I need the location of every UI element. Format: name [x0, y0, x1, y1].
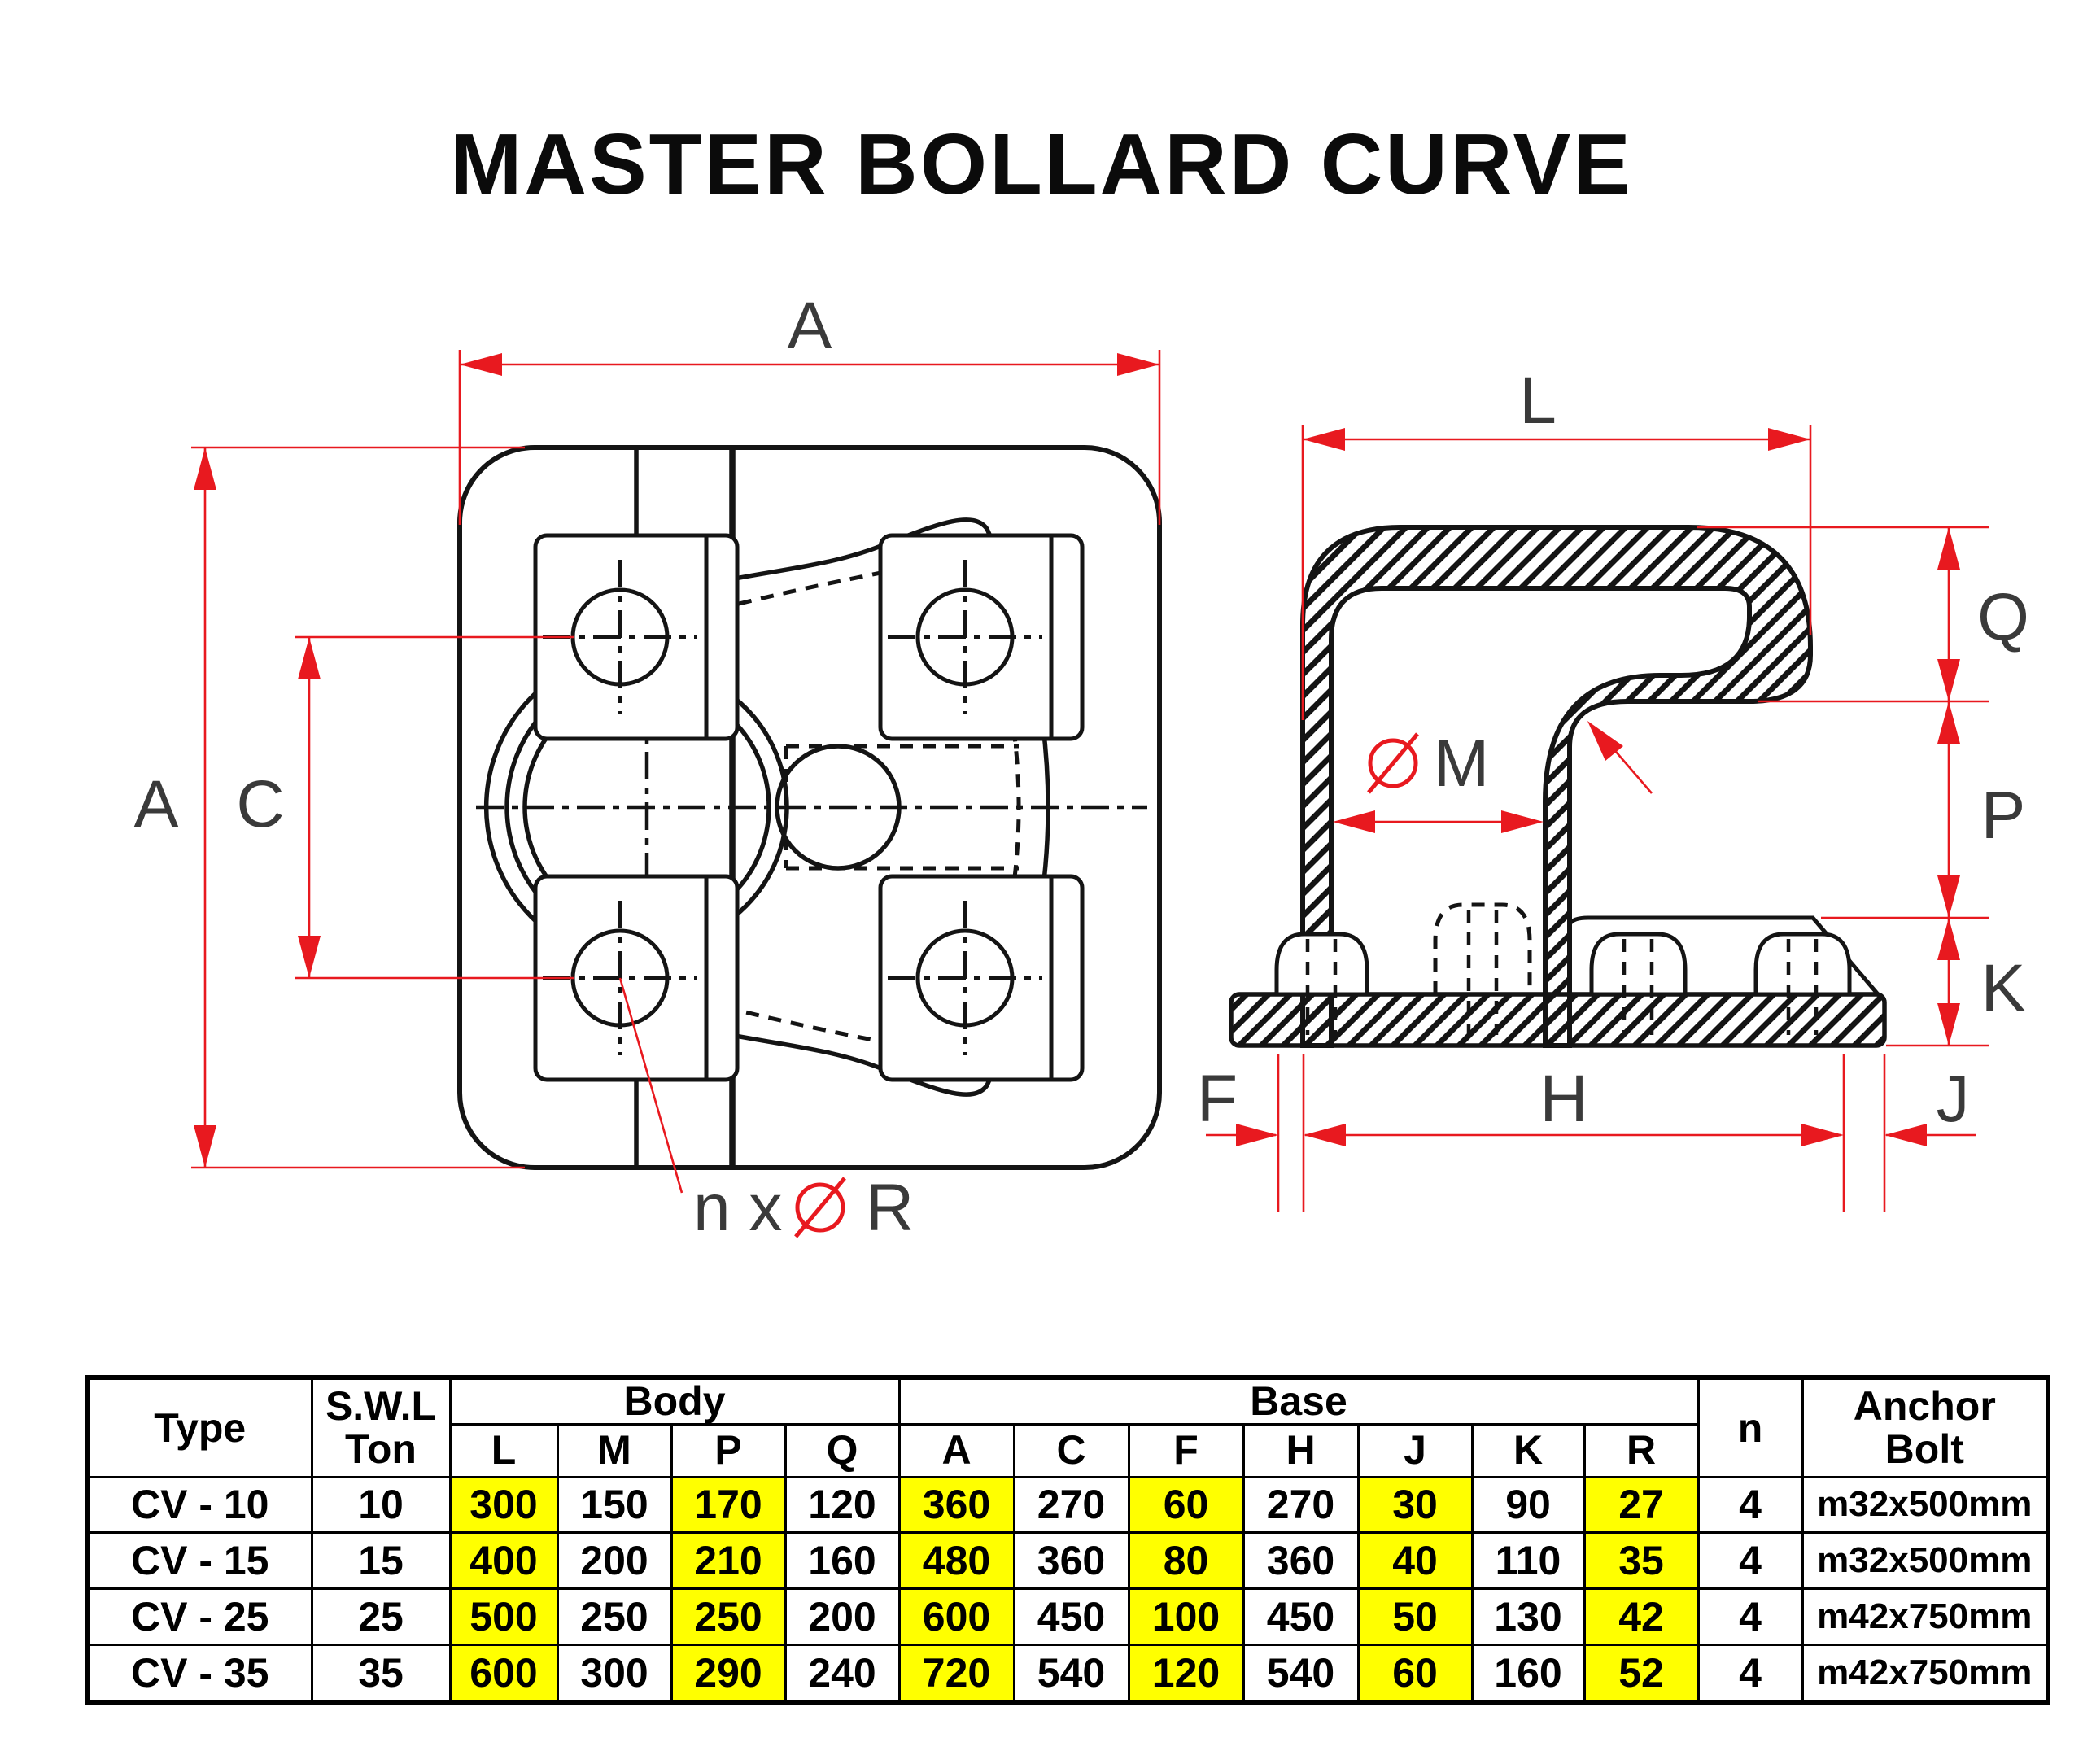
table-cell-J: 50 [1358, 1589, 1472, 1645]
dim-label-a-left: A [134, 767, 179, 841]
diameter-symbol [1369, 734, 1417, 792]
table-cell-P: 290 [671, 1644, 785, 1702]
bolt-note-suffix: R [866, 1171, 914, 1245]
table-cell-M: 300 [557, 1644, 671, 1702]
table-cell-L: 300 [450, 1477, 557, 1533]
dim-label-j: J [1937, 1062, 1970, 1136]
anchor-boss [1756, 934, 1849, 994]
table-cell-A: 720 [899, 1644, 1014, 1702]
header-n: n [1698, 1378, 1802, 1477]
table-cell-n: 4 [1698, 1589, 1802, 1645]
header-anchor-line1: Anchor [1854, 1383, 1996, 1429]
dim-label-k: K [1981, 951, 2026, 1025]
arrowhead-down [1937, 1003, 1960, 1046]
arrowhead-right [1801, 1124, 1844, 1146]
table-cell-J: 40 [1358, 1533, 1472, 1589]
plan-view: A A C n x [134, 289, 1159, 1245]
table-cell-A: 360 [899, 1477, 1014, 1533]
table-cell-F: 80 [1129, 1533, 1243, 1589]
header-col-J: J [1358, 1424, 1472, 1477]
arrowhead-up [1937, 527, 1960, 570]
side-dim-bottom: F H J [1197, 1054, 1976, 1212]
table-cell-K: 130 [1472, 1589, 1584, 1645]
table-cell-Q: 120 [785, 1477, 899, 1533]
side-dim-diameter: M [1333, 727, 1544, 833]
dim-label-l: L [1519, 364, 1557, 438]
table-cell-R: 42 [1584, 1589, 1698, 1645]
table-cell-Q: 160 [785, 1533, 899, 1589]
table-cell-n: 4 [1698, 1644, 1802, 1702]
table-cell-R: 27 [1584, 1477, 1698, 1533]
header-col-P: P [671, 1424, 785, 1477]
table-cell-type: CV - 35 [87, 1644, 312, 1702]
header-col-R: R [1584, 1424, 1698, 1477]
header-col-A: A [899, 1424, 1014, 1477]
table-cell-C: 360 [1014, 1533, 1129, 1589]
header-swl-line1: S.W.L [325, 1383, 436, 1429]
spec-table-container: Type S.W.L Ton Body Base n Anchor Bolt L… [85, 1375, 2046, 1705]
arrowhead-up [298, 637, 321, 679]
dim-label-c: C [236, 767, 284, 841]
table-cell-anchor: m32x500mm [1802, 1533, 2048, 1589]
table-cell-A: 480 [899, 1533, 1014, 1589]
table-cell-P: 170 [671, 1477, 785, 1533]
table-cell-swl: 25 [312, 1589, 450, 1645]
diameter-symbol [796, 1178, 845, 1237]
table-cell-J: 30 [1358, 1477, 1472, 1533]
arrowhead-right [1501, 810, 1544, 833]
table-cell-n: 4 [1698, 1477, 1802, 1533]
arrowhead-up [194, 448, 216, 490]
table-cell-R: 35 [1584, 1533, 1698, 1589]
header-col-M: M [557, 1424, 671, 1477]
anchor-boss-hidden [1435, 905, 1530, 994]
table-cell-C: 450 [1014, 1589, 1129, 1645]
arrowhead-left [460, 353, 502, 376]
arrowhead-down [1937, 659, 1960, 701]
side-base-plate [1231, 994, 1884, 1046]
dim-label-h: H [1539, 1062, 1587, 1136]
arrowhead-down [194, 1125, 216, 1168]
table-cell-P: 210 [671, 1533, 785, 1589]
table-cell-F: 100 [1129, 1589, 1243, 1645]
header-swl-line2: Ton [345, 1426, 417, 1472]
drawing-sheet: MASTER BOLLARD CURVE [0, 0, 2083, 1764]
anchor-boss [1277, 934, 1367, 994]
bolt-note-prefix: n x [693, 1171, 782, 1245]
dim-label-p: P [1981, 779, 2026, 853]
header-base-group: Base [899, 1378, 1698, 1424]
header-col-L: L [450, 1424, 557, 1477]
arrowhead-left [1303, 428, 1345, 451]
table-cell-H: 540 [1243, 1644, 1358, 1702]
arrowhead-down [1937, 875, 1960, 918]
dim-label-m: M [1434, 727, 1489, 801]
dim-label-a-top: A [788, 289, 832, 363]
table-cell-M: 150 [557, 1477, 671, 1533]
table-cell-L: 500 [450, 1589, 557, 1645]
side-dim-chain: Q P K [1697, 527, 2029, 1046]
table-cell-swl: 15 [312, 1533, 450, 1589]
side-view: L Q P K M [1197, 364, 2029, 1212]
spec-table: Type S.W.L Ton Body Base n Anchor Bolt L… [85, 1375, 2050, 1705]
header-col-K: K [1472, 1424, 1584, 1477]
table-cell-A: 600 [899, 1589, 1014, 1645]
side-radius-pointer [1587, 721, 1652, 793]
table-row: CV - 15154002002101604803608036040110354… [87, 1533, 2048, 1589]
table-cell-R: 52 [1584, 1644, 1698, 1702]
table-cell-anchor: m32x500mm [1802, 1477, 2048, 1533]
header-type: Type [87, 1378, 312, 1477]
table-cell-K: 110 [1472, 1533, 1584, 1589]
header-swl: S.W.L Ton [312, 1378, 450, 1477]
arrowhead-up [1937, 701, 1960, 744]
arrowhead-up [1937, 918, 1960, 960]
arrowhead-right [1768, 428, 1810, 451]
table-cell-L: 400 [450, 1533, 557, 1589]
table-cell-F: 120 [1129, 1644, 1243, 1702]
header-col-F: F [1129, 1424, 1243, 1477]
table-cell-J: 60 [1358, 1644, 1472, 1702]
spec-table-body: CV - 1010300150170120360270602703090274m… [87, 1477, 2048, 1702]
table-row: CV - 35356003002902407205401205406016052… [87, 1644, 2048, 1702]
header-body-group: Body [450, 1378, 899, 1424]
table-cell-anchor: m42x750mm [1802, 1589, 2048, 1645]
dim-label-f: F [1197, 1062, 1238, 1136]
arrowhead-left [1333, 810, 1375, 833]
header-anchor: Anchor Bolt [1802, 1378, 2048, 1477]
table-cell-anchor: m42x750mm [1802, 1644, 2048, 1702]
table-cell-H: 270 [1243, 1477, 1358, 1533]
table-cell-P: 250 [671, 1589, 785, 1645]
table-cell-Q: 200 [785, 1589, 899, 1645]
table-cell-H: 360 [1243, 1533, 1358, 1589]
arrowhead-left [1884, 1124, 1927, 1146]
table-cell-n: 4 [1698, 1533, 1802, 1589]
table-cell-Q: 240 [785, 1644, 899, 1702]
side-bollard-section [1303, 527, 1810, 1046]
table-cell-L: 600 [450, 1644, 557, 1702]
anchor-boss [1592, 934, 1685, 994]
header-col-C: C [1014, 1424, 1129, 1477]
dim-label-q: Q [1977, 580, 2029, 654]
arrowhead-right [1236, 1124, 1278, 1146]
table-cell-K: 90 [1472, 1477, 1584, 1533]
table-cell-swl: 35 [312, 1644, 450, 1702]
arrowhead-right [1117, 353, 1159, 376]
table-cell-C: 540 [1014, 1644, 1129, 1702]
table-cell-M: 200 [557, 1533, 671, 1589]
table-cell-K: 160 [1472, 1644, 1584, 1702]
header-col-H: H [1243, 1424, 1358, 1477]
arrowhead-left [1304, 1124, 1346, 1146]
table-cell-H: 450 [1243, 1589, 1358, 1645]
table-cell-type: CV - 10 [87, 1477, 312, 1533]
table-cell-M: 250 [557, 1589, 671, 1645]
table-cell-F: 60 [1129, 1477, 1243, 1533]
header-col-Q: Q [785, 1424, 899, 1477]
header-anchor-line2: Bolt [1885, 1426, 1964, 1472]
table-cell-type: CV - 15 [87, 1533, 312, 1589]
table-cell-type: CV - 25 [87, 1589, 312, 1645]
table-cell-C: 270 [1014, 1477, 1129, 1533]
table-row: CV - 1010300150170120360270602703090274m… [87, 1477, 2048, 1533]
table-row: CV - 25255002502502006004501004505013042… [87, 1589, 2048, 1645]
arrowhead-down [298, 936, 321, 978]
table-cell-swl: 10 [312, 1477, 450, 1533]
